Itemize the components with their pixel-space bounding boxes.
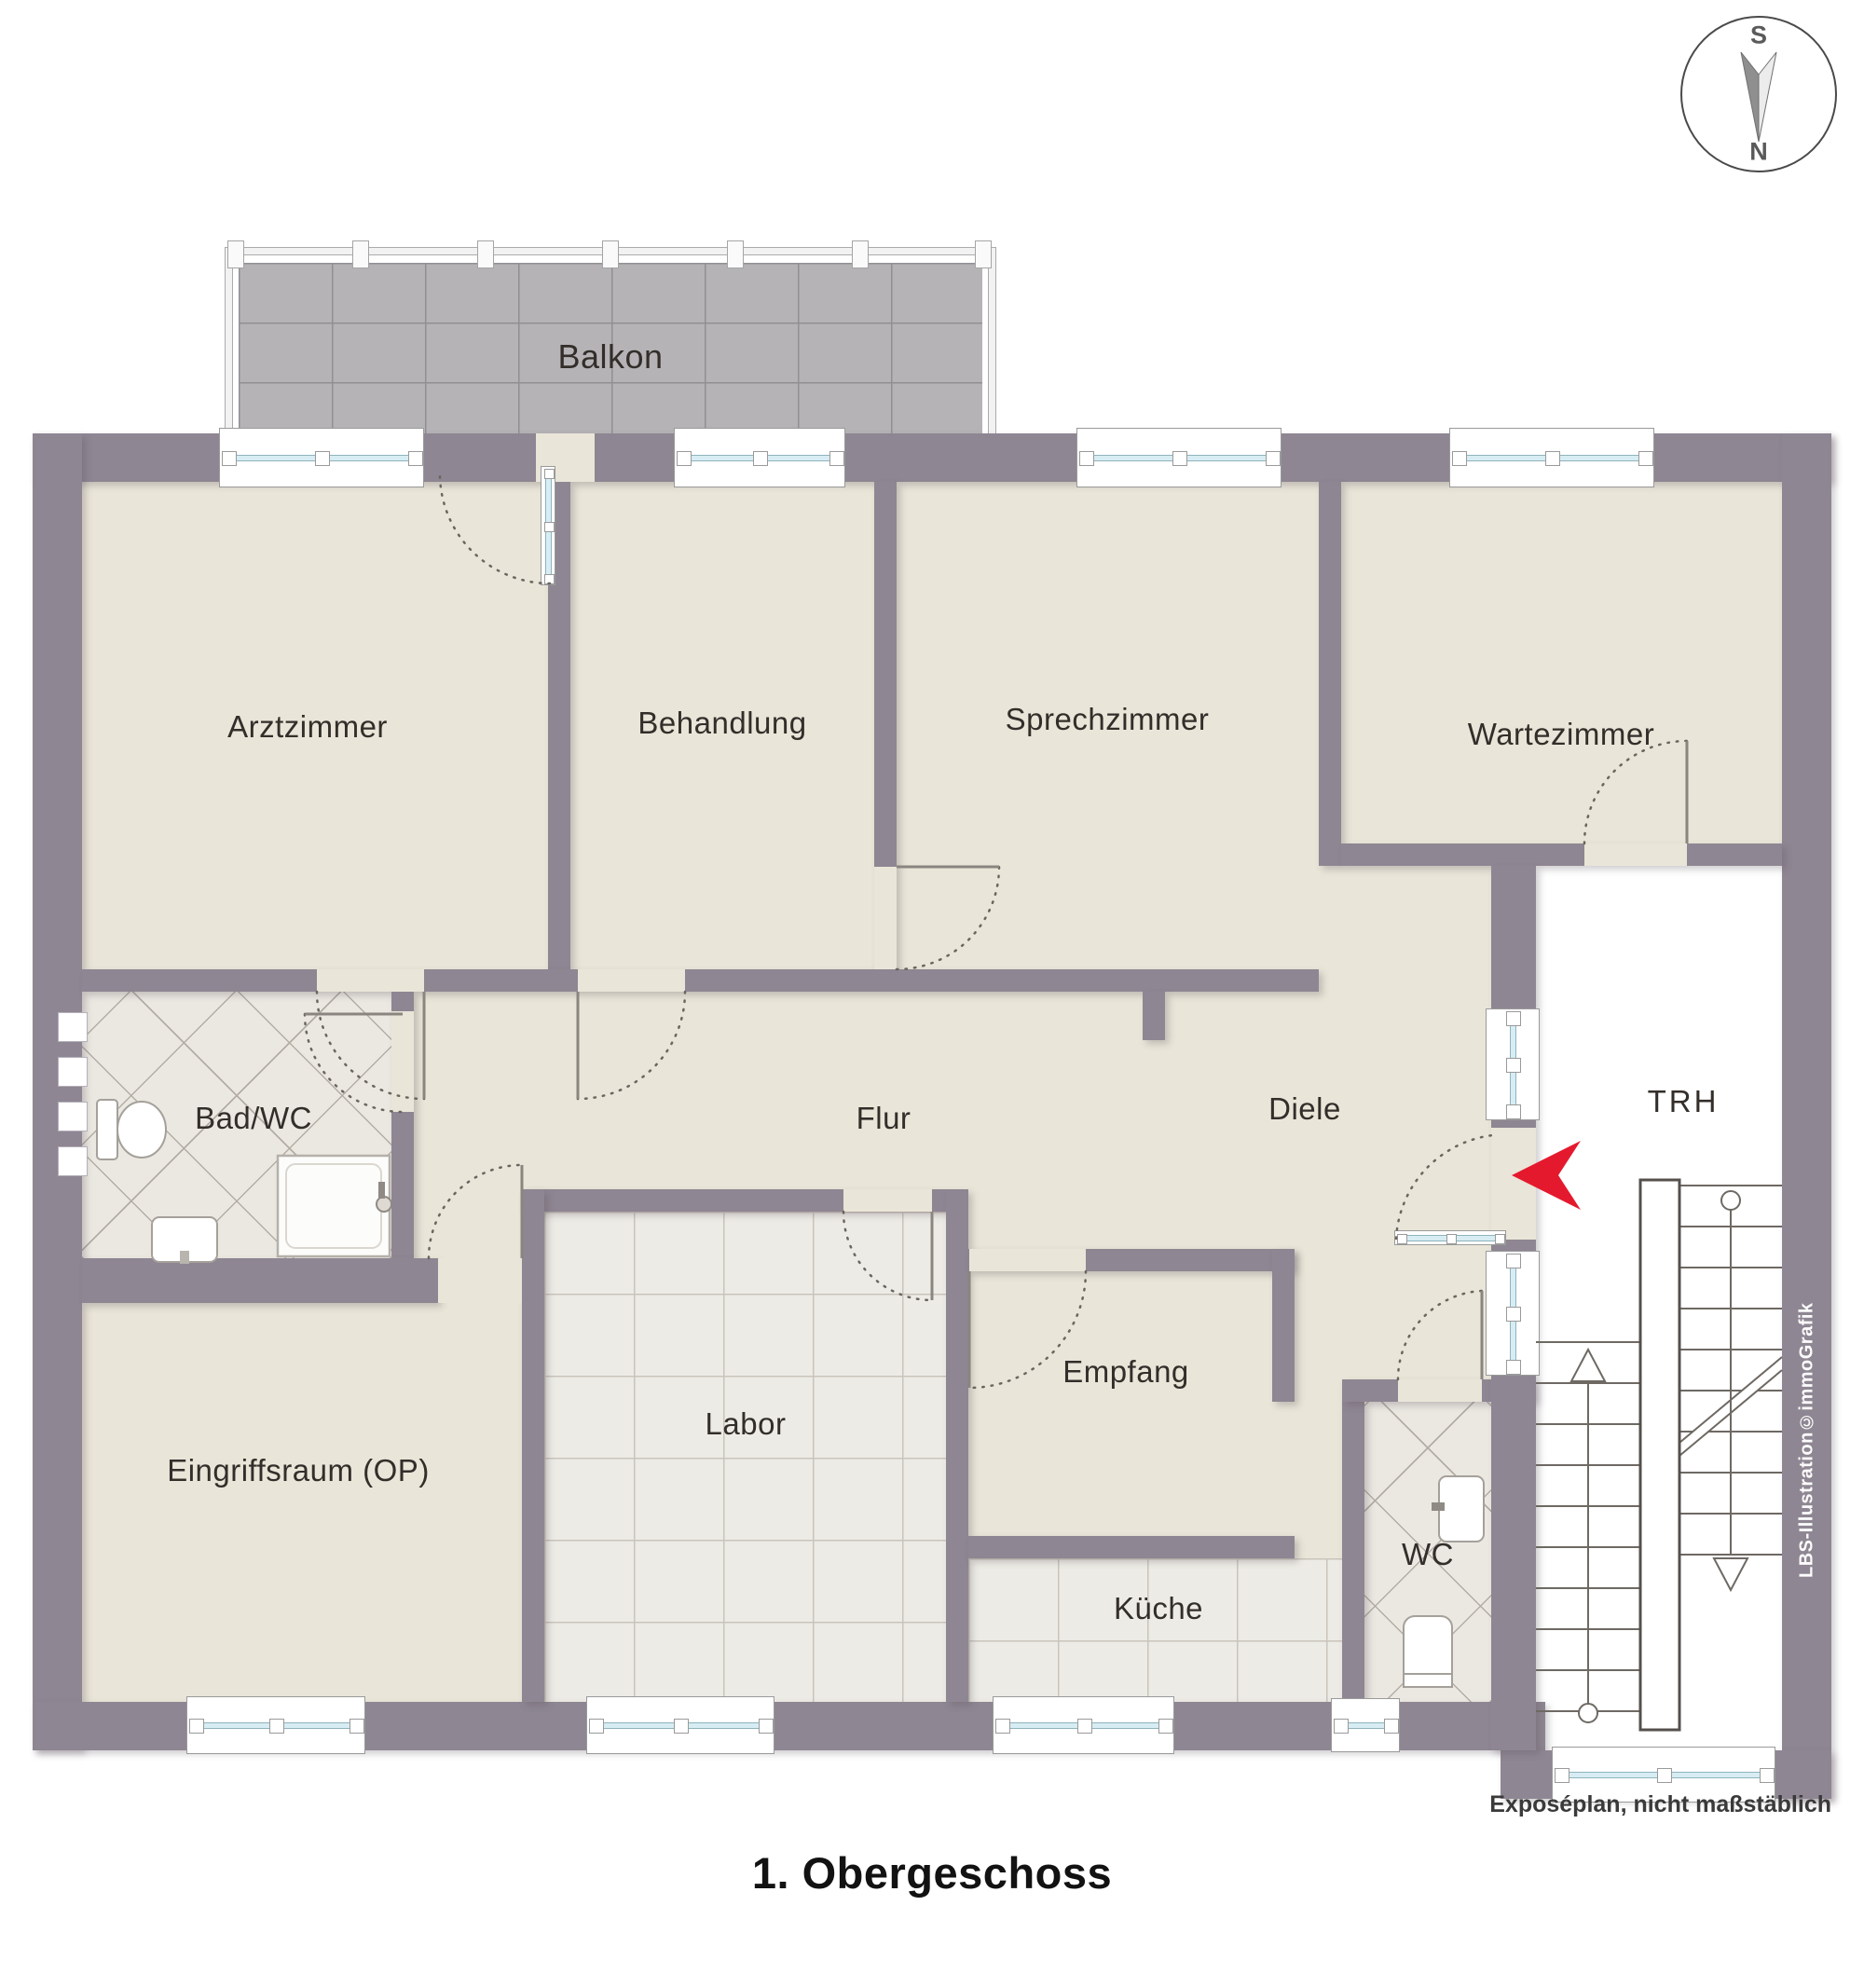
room-label-diele: Diele [1268,1091,1341,1127]
faucet-icon [1432,1502,1445,1511]
stair-spine [1640,1180,1679,1730]
watermark: LBS-Illustration©immoGrafik [1787,1230,1828,1650]
room-label-wc: WC [1402,1537,1454,1572]
plan-annotations [0,0,1864,1988]
room-label-bad-wc: Bad/WC [195,1101,312,1136]
door-arc [305,1014,403,1112]
room-label-arztzimmer: Arztzimmer [227,709,388,745]
compass-south-label: S [1750,21,1767,50]
door-arc [843,1212,932,1300]
door-arc [1396,1135,1493,1239]
room-label-flur: Flur [857,1101,911,1136]
room-label-sprechzimmer: Sprechzimmer [1006,702,1210,737]
door-arcs [305,475,1687,1388]
room-label-labor: Labor [706,1406,787,1442]
room-label-balkon: Balkon [557,337,663,377]
sink-icon [1439,1476,1484,1542]
compass-north-label: N [1749,138,1768,167]
toilet-icon [97,1100,117,1159]
door-arc [440,475,550,583]
wc-fixtures [1404,1476,1484,1687]
room-label-wartezimmer: Wartezimmer [1468,717,1654,752]
door-arc [578,992,685,1099]
shower-arm [378,1182,385,1199]
toilet-icon [117,1102,166,1158]
door-arc [429,1165,522,1258]
footnote: Exposéplan, nicht maßstäblich [1489,1791,1831,1818]
door-arc [897,867,999,969]
room-label-empfang: Empfang [1062,1354,1189,1390]
toilet-icon [1404,1674,1452,1687]
floor-plan: Balkon Arztzimmer Behandlung Sprechzimme… [0,0,1864,1988]
stair-guide-start [1721,1191,1740,1210]
room-label-eingriffsraum: Eingriffsraum (OP) [167,1453,430,1488]
room-label-kueche: Küche [1114,1591,1203,1626]
shower-head-icon [377,1197,391,1212]
stair-guide-start [1579,1704,1597,1722]
compass-needle-light [1759,52,1776,142]
door-arc [317,992,424,1099]
door-arc [1398,1291,1482,1379]
room-label-trh: TRH [1648,1084,1720,1119]
compass-needle-dark [1741,52,1759,142]
page-title: 1. Obergeschoss [752,1847,1112,1899]
faucet-icon [180,1251,189,1264]
shower-icon [278,1156,390,1256]
staircase [1536,1180,1782,1730]
stair-down-arrow-icon [1714,1558,1747,1590]
door-arc [1584,741,1687,843]
room-label-behandlung: Behandlung [637,706,806,741]
stair-up-arrow-icon [1571,1350,1605,1381]
entrance-arrow-icon [1512,1141,1581,1210]
